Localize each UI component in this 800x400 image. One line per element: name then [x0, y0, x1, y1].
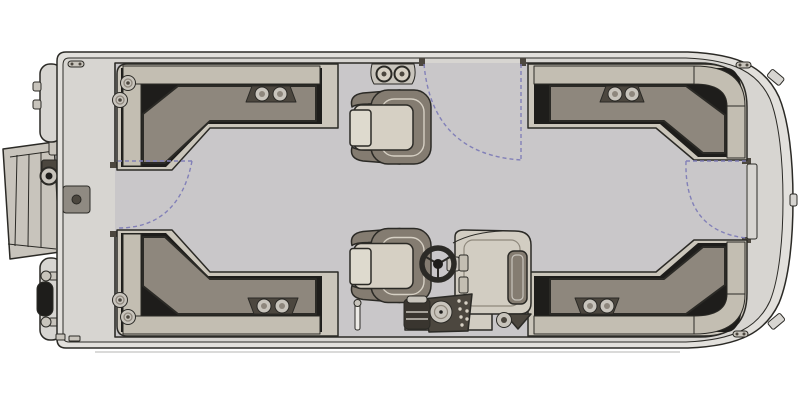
helm-step-cooler: [404, 296, 430, 329]
cupholder-panel: [248, 298, 298, 314]
helm-speaker: [497, 313, 512, 328]
boat-floorplan-canvas: Pontoon Boat Floor Plan — Overhead View: [0, 0, 800, 400]
console-side-panel: [508, 251, 527, 304]
bow-gate-door: [747, 164, 757, 239]
captain-chair-starboard: [350, 229, 431, 303]
fender-clip-icon: [33, 100, 41, 109]
boat-floorplan-drawing: [0, 0, 800, 400]
swim-ladder: [3, 139, 62, 259]
fender-clip-icon: [33, 82, 41, 91]
ski-tow-base: [63, 186, 90, 213]
outboard-motor-icon: [37, 282, 53, 316]
cupholder-panel: [246, 86, 296, 102]
rail-cupholder-station: [371, 64, 415, 84]
captain-chair-port: [350, 90, 431, 164]
stern-docking-light: [41, 160, 59, 185]
table-pedestal-mount: [354, 300, 361, 331]
